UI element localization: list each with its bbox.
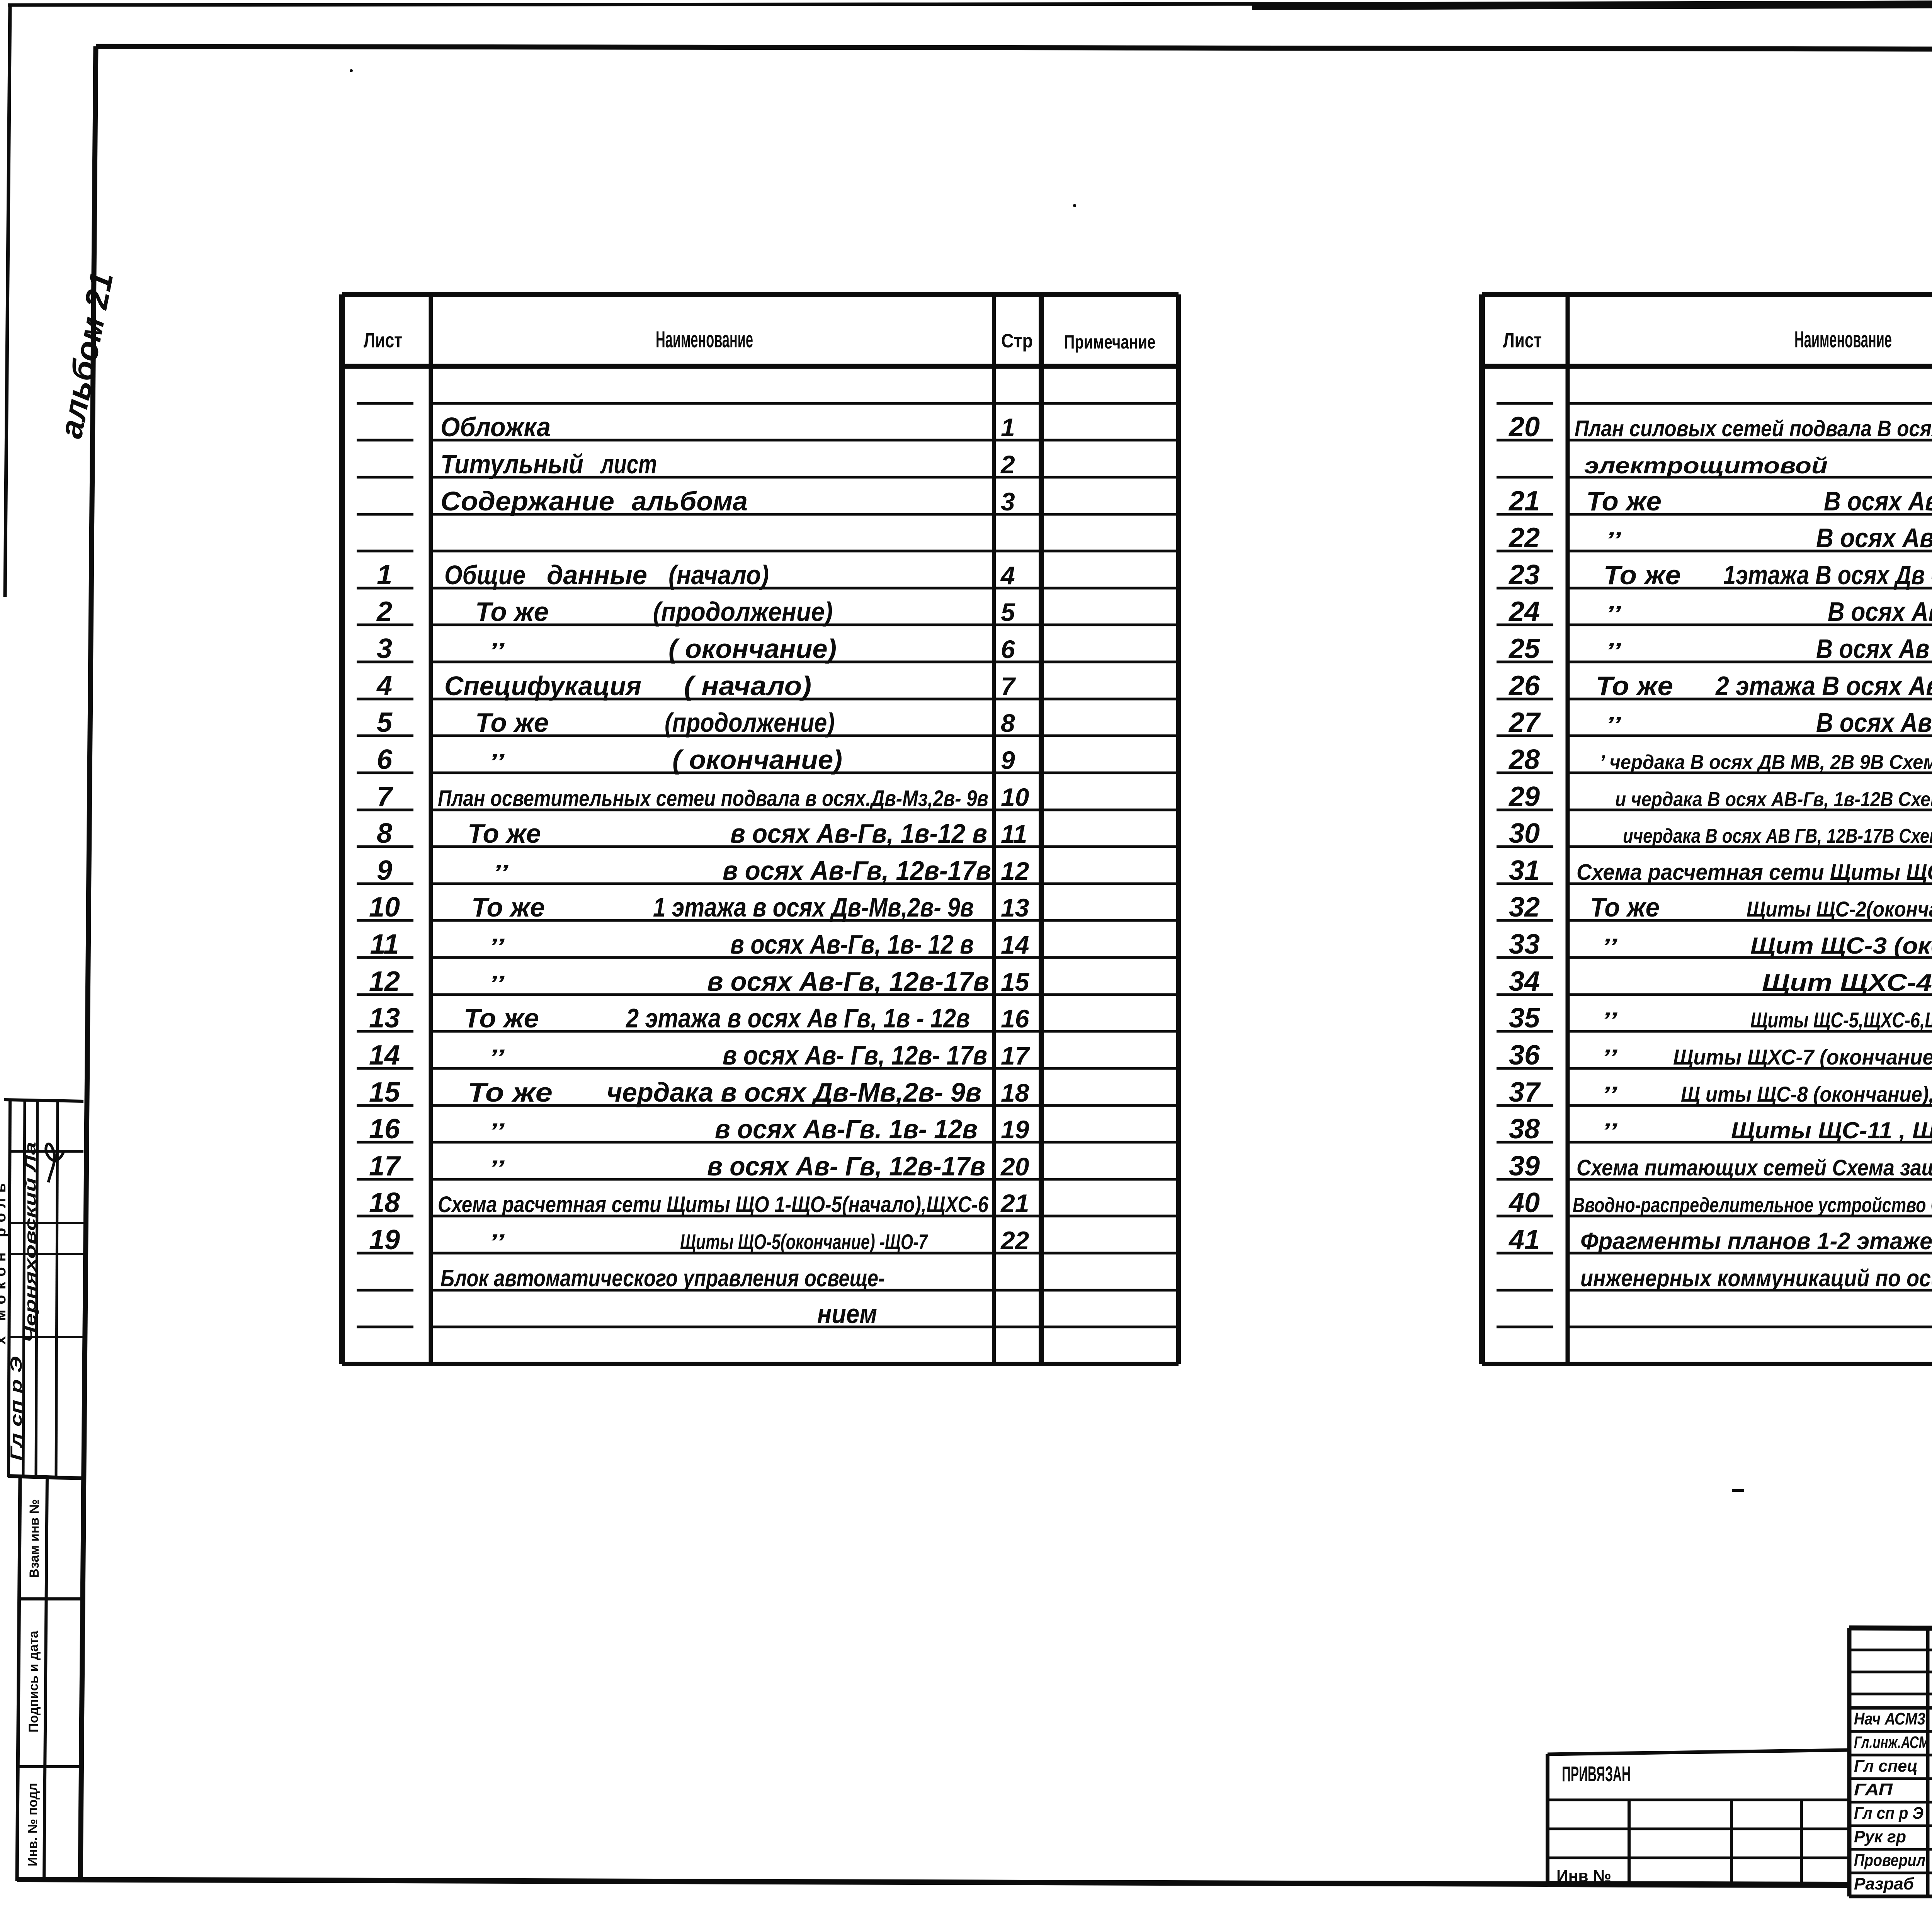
svg-text:1 этажа в осях Дв-Мв,2в- 9в: 1 этажа в осях Дв-Мв,2в- 9в <box>653 892 974 922</box>
svg-text:24: 24 <box>1508 596 1540 627</box>
svg-text:’’: ’’ <box>1602 1119 1618 1143</box>
svg-text:Инв. № подл: Инв. № подл <box>26 1783 40 1866</box>
svg-text:’’: ’’ <box>1605 638 1622 663</box>
svg-text:Щиты ЩС-11 , ЩС - 12: Щиты ЩС-11 , ЩС - 12 <box>1731 1117 1932 1143</box>
svg-text:8: 8 <box>377 818 392 849</box>
svg-text:Лист: Лист <box>1503 329 1542 352</box>
svg-text:14: 14 <box>369 1040 400 1071</box>
svg-text:32: 32 <box>1509 892 1540 923</box>
svg-text:13: 13 <box>1001 893 1029 922</box>
svg-text:6: 6 <box>377 744 393 775</box>
svg-text:’’: ’’ <box>489 638 505 663</box>
svg-text:17: 17 <box>369 1151 401 1182</box>
svg-text:’’: ’’ <box>489 1045 505 1069</box>
svg-text:’’: ’’ <box>1605 712 1622 736</box>
svg-text:2 этажа В осях Ав-Гв, 1 в - 12: 2 этажа В осях Ав-Гв, 1 в - 12 в <box>1715 671 1932 701</box>
svg-text:’’: ’’ <box>489 1230 505 1254</box>
svg-text:Нач АСМ3: Нач АСМ3 <box>1854 1709 1925 1728</box>
svg-text:2: 2 <box>376 596 392 627</box>
svg-text:( окончание): ( окончание) <box>672 745 842 775</box>
svg-text:1: 1 <box>1001 413 1015 442</box>
svg-text:чердака в осях Дв-Мв,2в- 9в: чердака в осях Дв-Мв,2в- 9в <box>607 1077 981 1107</box>
svg-text:38: 38 <box>1509 1114 1540 1145</box>
svg-text:Черняховский Ла: Черняховский Ла <box>22 1142 39 1343</box>
svg-text:13: 13 <box>369 1003 400 1034</box>
svg-text:8: 8 <box>1001 709 1015 737</box>
svg-text:’’: ’’ <box>489 1156 505 1180</box>
svg-text:Инв №: Инв № <box>1556 1867 1611 1886</box>
svg-text:37: 37 <box>1509 1077 1541 1108</box>
svg-text:в осях Ав-Гв, 12в-17в: в осях Ав-Гв, 12в-17в <box>723 855 991 886</box>
svg-text:(продолжение): (продолжение) <box>653 597 833 627</box>
svg-text:Стр: Стр <box>1001 330 1033 352</box>
svg-text:Обложка: Обложка <box>440 412 551 442</box>
svg-text:Гл сп р Э: Гл сп р Э <box>7 1356 25 1461</box>
svg-text:14: 14 <box>1001 930 1029 959</box>
svg-text:То же: То же <box>1586 486 1662 516</box>
svg-text:’’: ’’ <box>1605 527 1622 552</box>
svg-text:31: 31 <box>1509 855 1540 886</box>
svg-text:9: 9 <box>377 855 392 886</box>
svg-text:36: 36 <box>1509 1040 1540 1071</box>
svg-text:Рук гр: Рук гр <box>1854 1827 1906 1846</box>
svg-text:30: 30 <box>1509 818 1540 849</box>
svg-text:16: 16 <box>369 1114 400 1145</box>
svg-text:4: 4 <box>376 670 392 701</box>
svg-text:17: 17 <box>1001 1041 1031 1070</box>
svg-text:27: 27 <box>1508 707 1541 738</box>
svg-text:12: 12 <box>1001 857 1029 885</box>
svg-text:Вводно-распределительное устро: Вводно-распределительное устройство Опро… <box>1573 1194 1932 1217</box>
svg-text:Подпись и дата: Подпись и дата <box>26 1630 41 1733</box>
svg-text:Щиты ЩС-2(окончание), ЩС 3 (на: Щиты ЩС-2(окончание), ЩС 3 (начало) <box>1747 897 1932 921</box>
svg-text:Щиты ЩС-5,ЩХС-6,ЩХС-7 ( начало: Щиты ЩС-5,ЩХС-6,ЩХС-7 ( начало) <box>1750 1008 1932 1032</box>
svg-text:16: 16 <box>1001 1004 1030 1033</box>
svg-text:2 этажа в осях Ав Гв, 1в - 12в: 2 этажа в осях Ав Гв, 1в - 12в <box>625 1003 970 1033</box>
svg-text:в осях Ав- Гв, 12в-17в: в осях Ав- Гв, 12в-17в <box>707 1151 985 1181</box>
svg-text:25: 25 <box>1508 633 1540 664</box>
svg-text:То же: То же <box>475 597 549 627</box>
svg-text:34: 34 <box>1509 966 1540 997</box>
svg-text:То же: То же <box>475 707 549 738</box>
svg-text:28: 28 <box>1508 744 1540 775</box>
svg-text:5: 5 <box>1001 598 1015 626</box>
svg-text:данные: данные <box>547 560 647 590</box>
svg-text:’’: ’’ <box>1602 1008 1618 1032</box>
svg-text:2: 2 <box>1000 450 1015 479</box>
svg-text:40: 40 <box>1508 1187 1540 1218</box>
svg-text:3: 3 <box>1001 487 1015 516</box>
svg-text:’’: ’’ <box>489 971 505 995</box>
svg-text:( начало): ( начало) <box>684 671 811 701</box>
svg-text:Общие: Общие <box>444 560 526 590</box>
svg-text:19: 19 <box>1001 1115 1029 1144</box>
svg-text:План силовых сетей подвала В о: План силовых сетей подвала В осях Дв-Мв,… <box>1575 416 1932 441</box>
svg-text:Щит ЩХС-4: Щит ЩХС-4 <box>1762 969 1932 996</box>
svg-text:в осях Ав-Гв, 1в- 12 в: в осях Ав-Гв, 1в- 12 в <box>730 929 974 959</box>
svg-text:Схема расчетная сети Щиты ЩС-1: Схема расчетная сети Щиты ЩС-1, ЩС-2 ( н… <box>1577 860 1932 885</box>
svg-text:39: 39 <box>1509 1151 1540 1182</box>
svg-text:В осях Ав - Гв, 1в - 12В: В осях Ав - Гв, 1в - 12В <box>1828 597 1932 627</box>
svg-text:Гл спец: Гл спец <box>1854 1757 1918 1776</box>
svg-text:1этажа В осях Дв -Мв,2 в- 9в: 1этажа В осях Дв -Мв,2 в- 9в <box>1723 560 1932 590</box>
svg-text:22: 22 <box>1000 1226 1029 1255</box>
svg-text:7: 7 <box>377 781 393 812</box>
svg-text:(начало): (начало) <box>668 560 769 590</box>
svg-text:ПРИВЯЗАН: ПРИВЯЗАН <box>1562 1762 1631 1786</box>
svg-text:ГАП: ГАП <box>1854 1780 1893 1799</box>
svg-text:6: 6 <box>1001 635 1015 663</box>
svg-text:План осветительных сетеи подва: План осветительных сетеи подвала в осях.… <box>438 786 988 811</box>
svg-text:В осях Ав-Гв, 1в - 12В: В осях Ав-Гв, 1в - 12В <box>1824 486 1932 516</box>
svg-text:(продолжение): (продолжение) <box>665 707 835 738</box>
svg-text:33: 33 <box>1509 929 1540 960</box>
svg-text:11: 11 <box>1001 820 1027 848</box>
svg-text:и чердака В осях АВ-Гв, 1в-12В: и чердака В осях АВ-Гв, 1в-12В Схема цеп… <box>1615 788 1932 811</box>
svg-text:Специфукация: Специфукация <box>444 671 641 701</box>
svg-text:Гл.инж.АСМ: Гл.инж.АСМ <box>1854 1733 1930 1752</box>
svg-text:Щиты ЩХС-7 (окончание), ЩС-8 (: Щиты ЩХС-7 (окончание), ЩС-8 ( начало) <box>1673 1045 1932 1069</box>
svg-text:20: 20 <box>1508 412 1540 442</box>
svg-text:Лист: Лист <box>364 329 402 352</box>
svg-text:То же: То же <box>1604 560 1681 590</box>
svg-text:’’: ’’ <box>489 1119 505 1143</box>
svg-text:’’: ’’ <box>489 749 505 774</box>
svg-text:Наименование: Наименование <box>656 327 753 352</box>
svg-text:15: 15 <box>1001 968 1030 996</box>
svg-text:( окончание): ( окончание) <box>668 634 837 664</box>
svg-text:11: 11 <box>370 929 399 960</box>
svg-text:Взам инв №: Взам инв № <box>27 1499 42 1578</box>
svg-text:альбома: альбома <box>632 486 748 516</box>
svg-text:Проверил: Проверил <box>1854 1851 1925 1870</box>
svg-text:лист: лист <box>600 449 657 479</box>
svg-text:Схема питающих сетей Схема защ: Схема питающих сетей Схема защитного зан… <box>1577 1155 1932 1180</box>
svg-text:нием: нием <box>817 1299 877 1329</box>
svg-text:41: 41 <box>1508 1225 1540 1255</box>
svg-text:’’: ’’ <box>1602 934 1618 958</box>
svg-text:Примечание: Примечание <box>1064 331 1156 353</box>
svg-text:29: 29 <box>1508 781 1540 812</box>
svg-text:12: 12 <box>369 966 400 997</box>
svg-text:10: 10 <box>369 892 400 923</box>
svg-text:’’: ’’ <box>493 860 509 884</box>
svg-text:инженерных коммуникаций по оси: инженерных коммуникаций по оси Бв и Вв <box>1580 1265 1932 1292</box>
svg-text:То же: То же <box>468 818 541 849</box>
svg-text:То же: То же <box>471 892 545 922</box>
svg-text:Фрагменты планов 1-2 этажей с: Фрагменты планов 1-2 этажей с зонами <box>1580 1228 1932 1255</box>
svg-text:3: 3 <box>377 633 392 664</box>
svg-text:15: 15 <box>369 1077 400 1108</box>
svg-text:Блок автоматического управлени: Блок автоматического управления освеще- <box>440 1265 885 1292</box>
svg-text:Щ иты ЩС-8 (окончание), ЩС-9,: Щ иты ЩС-8 (окончание), ЩС-9, ЩХ- 10 <box>1681 1082 1932 1106</box>
svg-text:4: 4 <box>1000 561 1015 590</box>
svg-text:ичердака В осях АВ ГВ, 12В-17В: ичердака В осях АВ ГВ, 12В-17В Схема цеп… <box>1623 825 1932 847</box>
svg-text:в осях Ав-Гв, 1в-12 в: в осях Ав-Гв, 1в-12 в <box>730 818 987 849</box>
svg-text:в осях Ав-Гв, 12в-17в: в осях Ав-Гв, 12в-17в <box>707 966 989 997</box>
svg-text:21: 21 <box>1508 486 1540 517</box>
svg-text:10: 10 <box>1001 783 1029 811</box>
svg-text:7: 7 <box>1001 672 1016 701</box>
svg-text:23: 23 <box>1508 560 1540 590</box>
svg-text:То же: То же <box>1596 671 1673 701</box>
svg-text:18: 18 <box>1001 1078 1029 1107</box>
svg-text:электрощитовой: электрощитовой <box>1584 453 1828 478</box>
svg-text:’’: ’’ <box>1602 1082 1618 1106</box>
svg-text:26: 26 <box>1508 670 1540 701</box>
svg-text:Содержание: Содержание <box>440 486 614 516</box>
svg-text:в осях Ав-Гв. 1в- 12в: в осях Ав-Гв. 1в- 12в <box>715 1114 978 1144</box>
svg-text:В осях Ав -Гв, 12 в - 17В: В осях Ав -Гв, 12 в - 17В <box>1816 707 1932 738</box>
svg-text:19: 19 <box>369 1225 400 1255</box>
svg-text:9: 9 <box>1001 746 1015 774</box>
svg-text:Наименование: Наименование <box>1794 327 1892 352</box>
svg-text:’’: ’’ <box>1602 1045 1618 1069</box>
svg-text:’ чердака В осях ДВ МВ, 2В 9В: ’ чердака В осях ДВ МВ, 2В 9В Схема цепе… <box>1600 751 1932 774</box>
svg-text:’’: ’’ <box>489 934 505 958</box>
svg-text:То же: То же <box>464 1003 539 1033</box>
svg-text:5: 5 <box>377 707 393 738</box>
svg-text:То же: То же <box>1590 892 1660 922</box>
svg-text:20: 20 <box>1000 1152 1029 1181</box>
svg-text:22: 22 <box>1508 522 1540 553</box>
svg-text:’’: ’’ <box>1605 601 1622 626</box>
svg-text:Гл сп р Э: Гл сп р Э <box>1854 1804 1923 1823</box>
svg-text:в осях Ав- Гв, 12в- 17в: в осях Ав- Гв, 12в- 17в <box>723 1040 987 1070</box>
svg-text:21: 21 <box>1000 1189 1029 1218</box>
svg-text:35: 35 <box>1509 1003 1540 1034</box>
svg-text:18: 18 <box>369 1187 400 1218</box>
svg-text:Схема расчетная сети Щиты ЩО 1: Схема расчетная сети Щиты ЩО 1-ЩО-5(нача… <box>438 1192 989 1217</box>
svg-text:В осях Ав - Гв, 12 в - 17 в: В осях Ав - Гв, 12 в - 17 в <box>1816 634 1932 664</box>
svg-text:х мокон роль: х мокон роль <box>0 1178 9 1345</box>
svg-text:То же: То же <box>468 1077 553 1107</box>
svg-text:В осях Ав-Гв, 12В -17В: В осях Ав-Гв, 12В -17В <box>1816 523 1932 553</box>
svg-text:Щиты ЩО-5(окончание) -ЩО-7: Щиты ЩО-5(окончание) -ЩО-7 <box>680 1230 928 1254</box>
svg-text:Титульный: Титульный <box>440 449 583 479</box>
svg-text:Разраб: Разраб <box>1854 1874 1915 1893</box>
svg-text:Щит ЩС-3 (окончание): Щит ЩС-3 (окончание) <box>1750 933 1932 959</box>
svg-text:1: 1 <box>377 560 392 590</box>
